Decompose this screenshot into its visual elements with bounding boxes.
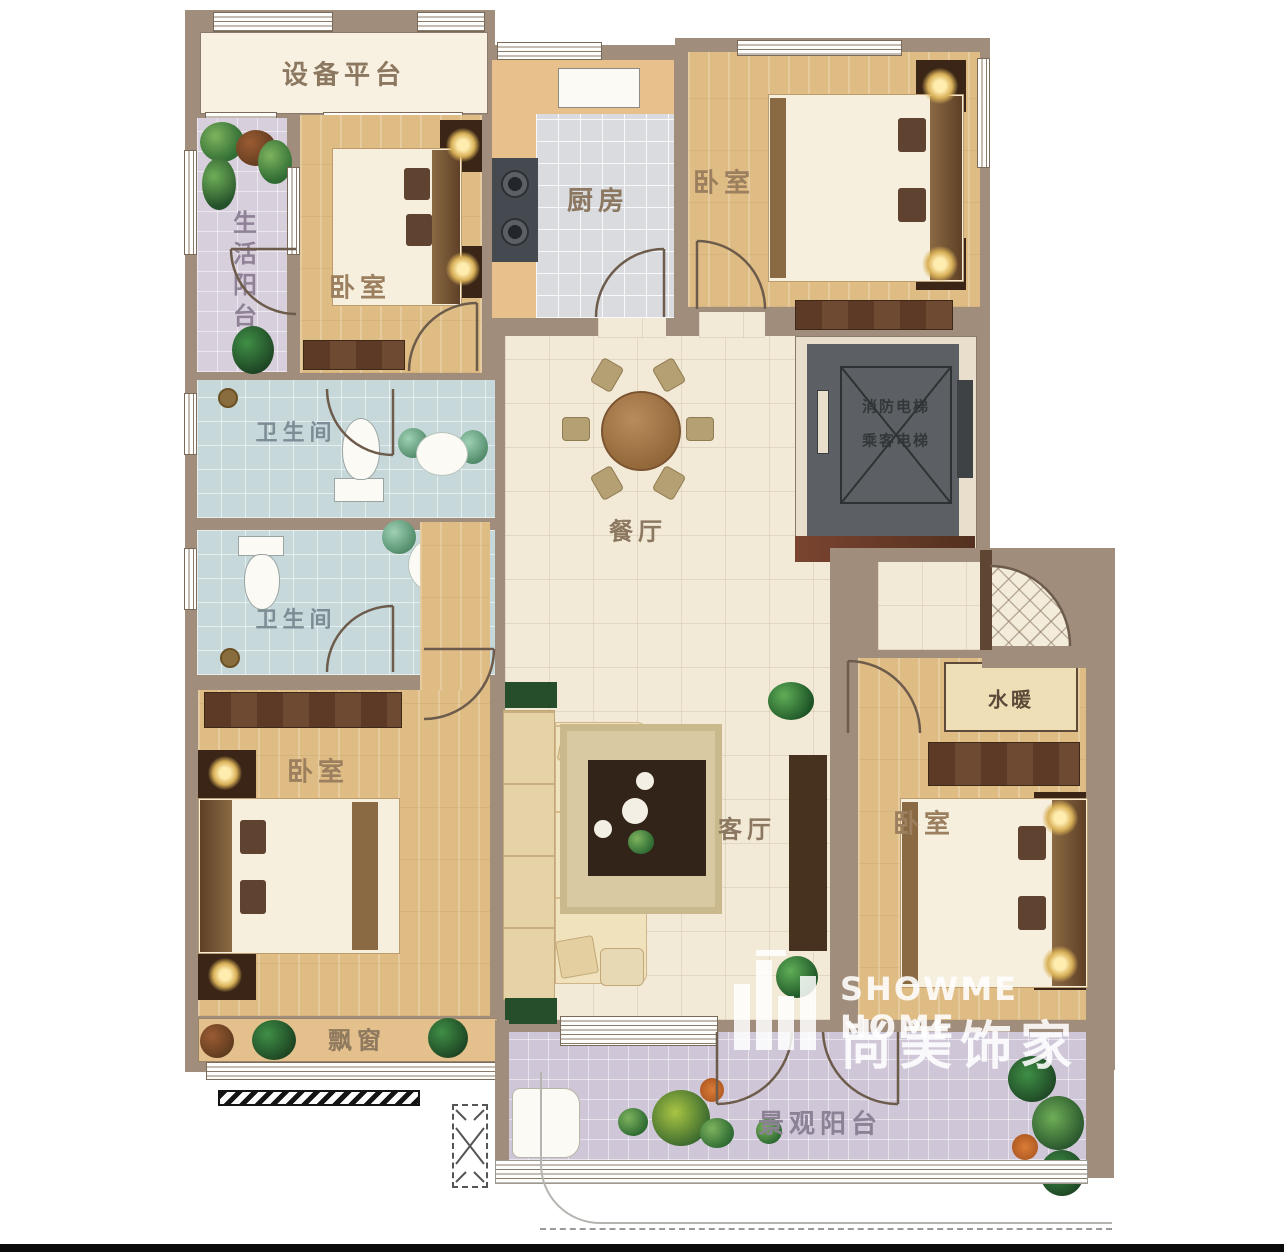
- door-bedroom-tl: [409, 303, 477, 371]
- watermark-logo-icon: [778, 996, 794, 1050]
- watermark-logo-icon: [756, 960, 772, 1050]
- door-bathroom-lower: [327, 606, 393, 672]
- door-bathroom-upper: [327, 389, 393, 455]
- watermark-text-cn: 尚美饰家: [840, 1004, 1080, 1079]
- door-life-balcony: [231, 249, 296, 314]
- watermark-logo-icon: [800, 976, 816, 1050]
- door-kitchen: [596, 249, 664, 317]
- door-entry: [990, 566, 1070, 646]
- watermark-logo-flag: [756, 950, 786, 956]
- floor-plan: 设备平台 生活阳台 卧室 厨房 卧室 消防电梯: [0, 0, 1284, 1252]
- drain-x: [456, 1110, 484, 1182]
- door-bedroom-tr: [697, 241, 765, 309]
- watermark-logo-icon: [734, 984, 750, 1050]
- door-bedroom-br: [848, 661, 920, 733]
- elevator-x: [842, 368, 950, 502]
- watermark: SHOWME HOME 尚美饰家: [728, 948, 1138, 1078]
- door-bedroom-bl: [424, 649, 494, 719]
